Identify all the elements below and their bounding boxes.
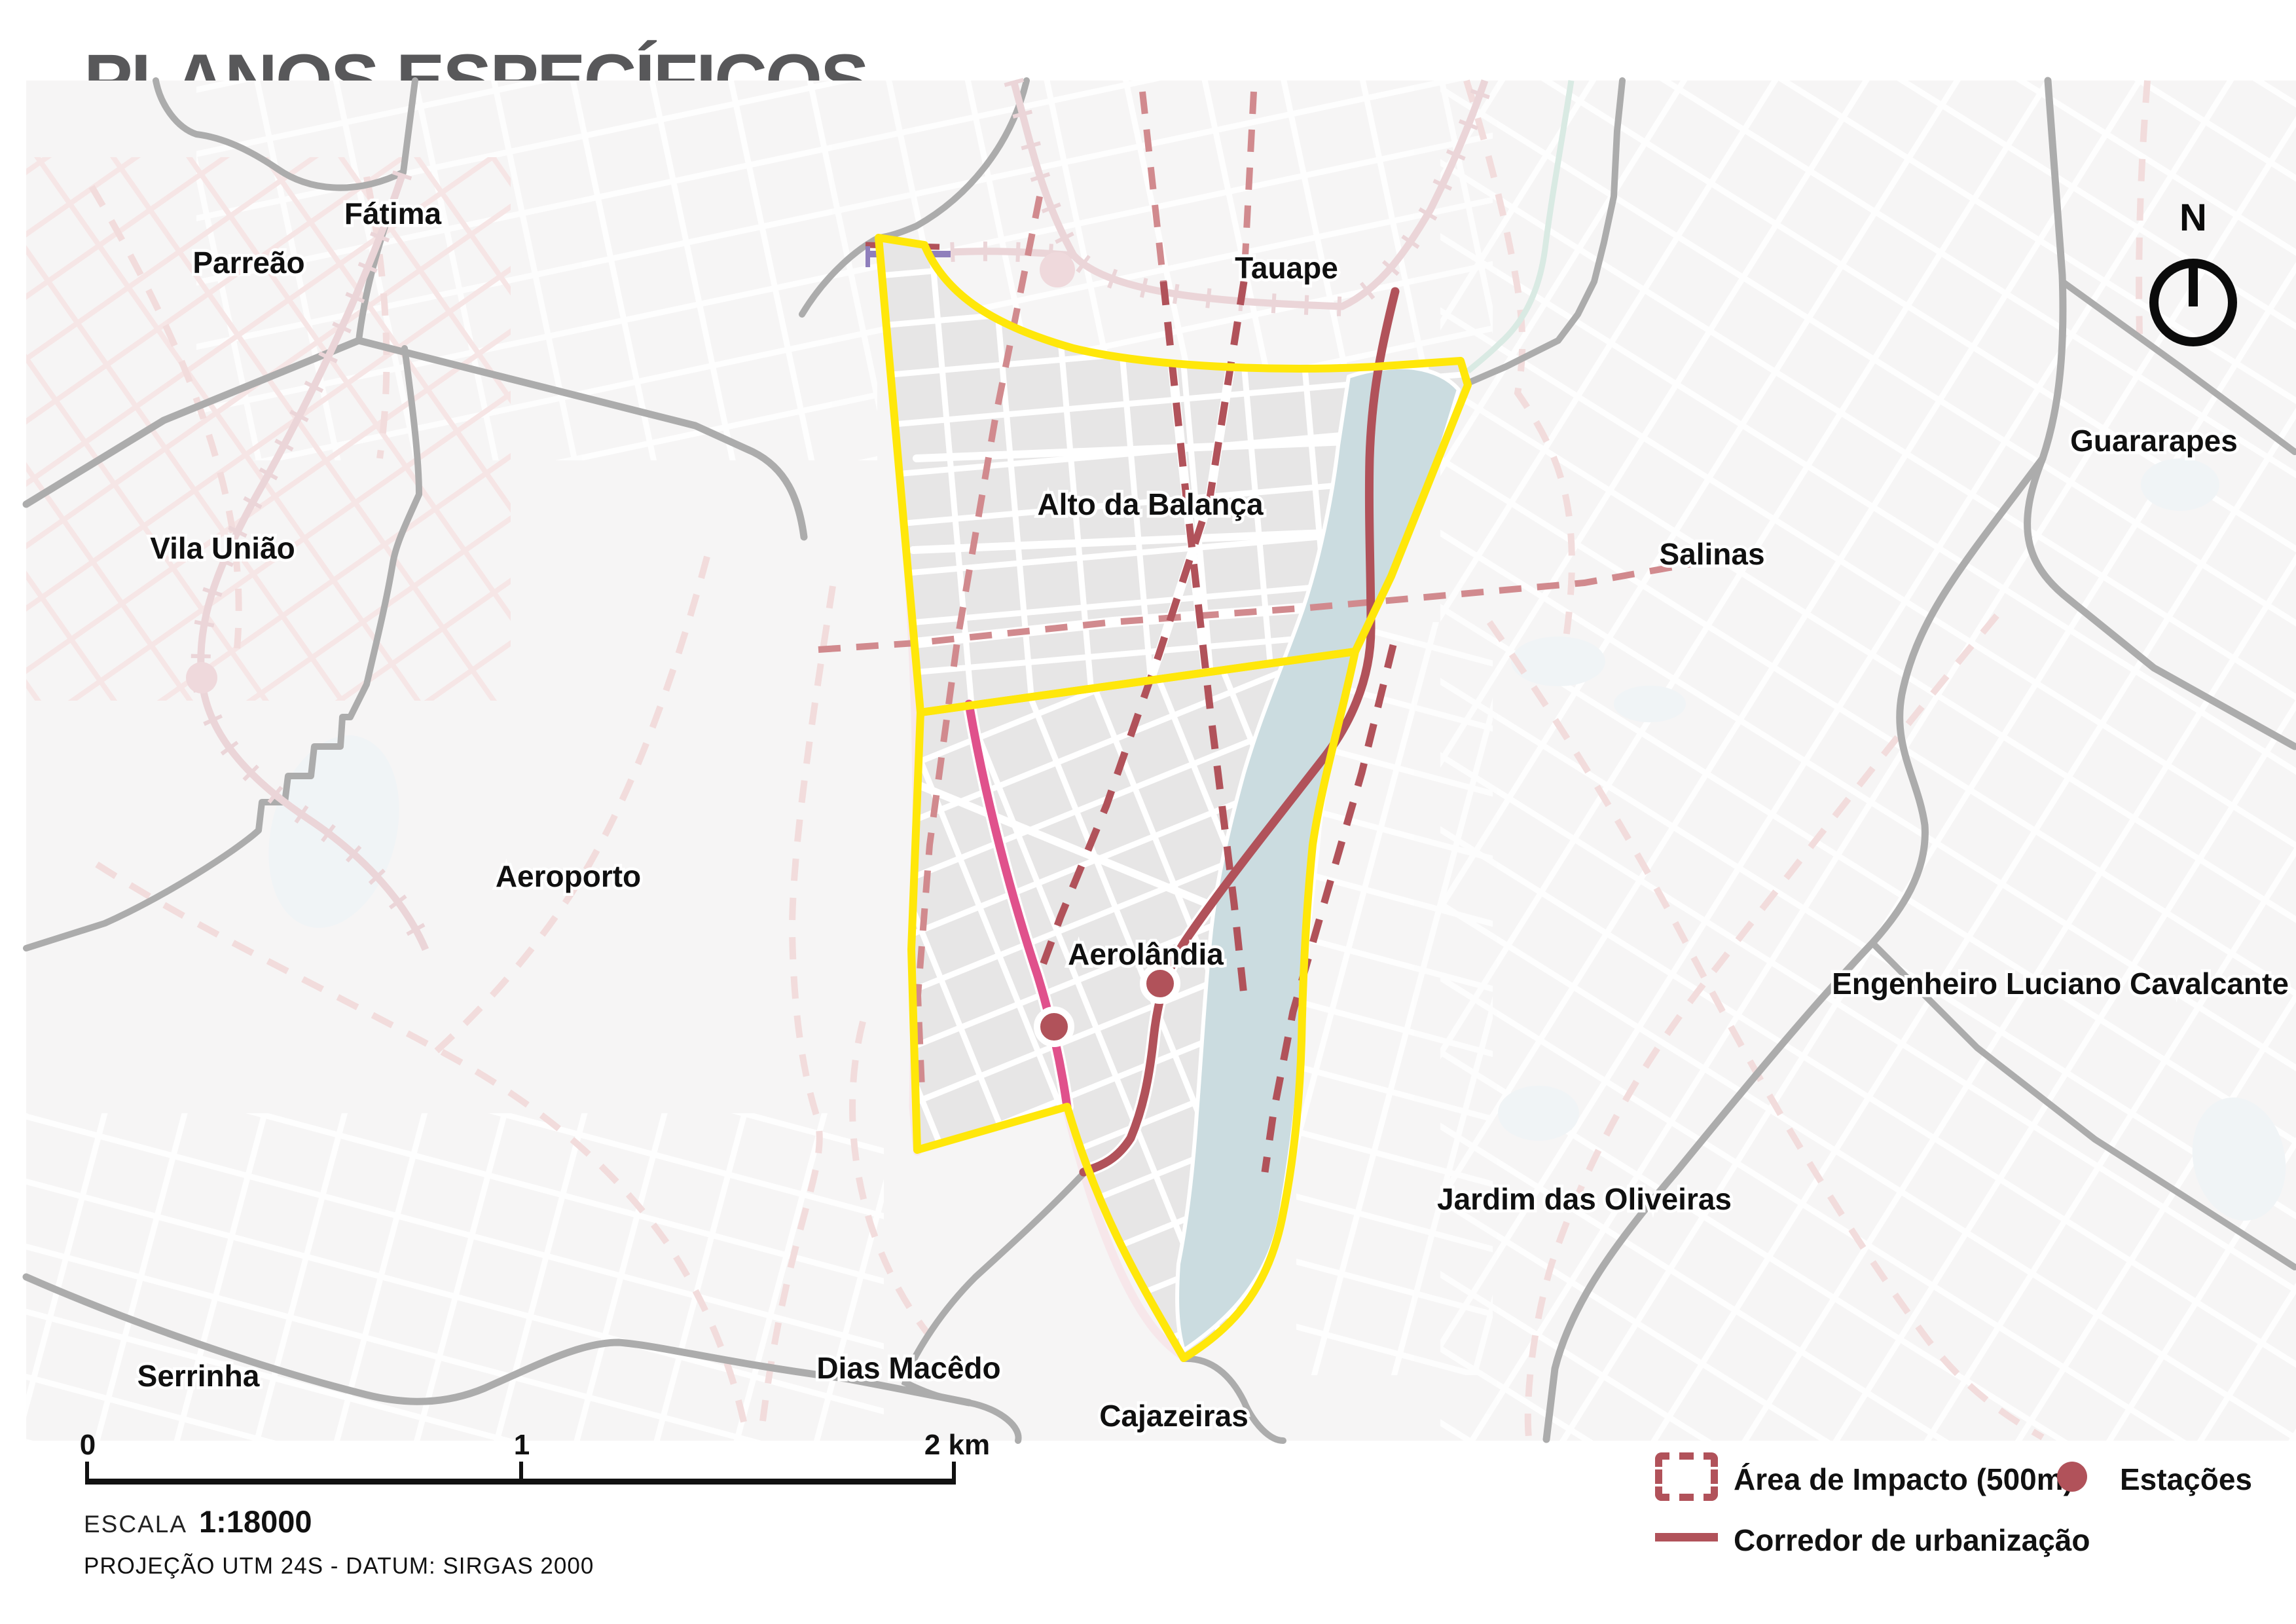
scale-tick-1-label: 1 xyxy=(514,1429,530,1462)
scale-bar-tick xyxy=(952,1462,956,1481)
label-salinas: Salinas xyxy=(1659,537,1764,571)
projection-note: PROJEÇÃO UTM 24S - DATUM: SIRGAS 2000 xyxy=(84,1553,594,1579)
label-aeroporto: Aeroporto xyxy=(496,859,641,893)
scale-tick-2-label: 2 km xyxy=(924,1429,990,1462)
label-vila-uniao: Vila União xyxy=(150,531,295,565)
railway-station-circle xyxy=(1040,252,1075,287)
label-cajazeiras: Cajazeiras xyxy=(1099,1399,1248,1433)
station-dot xyxy=(1037,1010,1071,1044)
label-guararapes: Guararapes xyxy=(2070,424,2238,458)
scale-bar-tick xyxy=(519,1462,523,1481)
scale-bar-tick xyxy=(85,1462,89,1481)
label-serrinha: Serrinha xyxy=(137,1359,260,1393)
label-fatima: Fátima xyxy=(344,196,442,231)
station-dot xyxy=(1143,967,1177,1001)
map-canvas: Fátima Parreão Tauape Vila União Guarara… xyxy=(0,0,2296,1624)
label-eng-luciano-cavalcante: Engenheiro Luciano Cavalcante xyxy=(1832,967,2289,1001)
legend-impact-label: Área de Impacto (500m) xyxy=(1734,1462,2073,1497)
label-tauape: Tauape xyxy=(1235,251,1338,285)
impact-area-icon xyxy=(1655,1452,1718,1501)
corridor-icon xyxy=(1655,1533,1718,1541)
label-dias-macedo: Dias Macêdo xyxy=(816,1351,1000,1385)
scale-tick-0-label: 0 xyxy=(80,1429,96,1462)
label-jardim-das-oliveiras: Jardim das Oliveiras xyxy=(1437,1182,1732,1216)
legend-stations-label: Estações xyxy=(2120,1462,2252,1497)
escala-value: 1:18000 xyxy=(199,1504,312,1539)
stations-icon xyxy=(2057,1462,2087,1492)
scale-text-row: ESCALA1:18000 xyxy=(84,1504,312,1540)
label-alto-da-balanca: Alto da Balança xyxy=(1037,487,1264,521)
railway-station-circle xyxy=(186,662,217,693)
legend-corridor-label: Corredor de urbanização xyxy=(1734,1522,2090,1558)
label-aerolandia: Aerolândia xyxy=(1068,937,1224,971)
north-letter: N xyxy=(2179,196,2207,239)
escala-label: ESCALA xyxy=(84,1511,187,1538)
label-parreao: Parreão xyxy=(192,246,304,280)
